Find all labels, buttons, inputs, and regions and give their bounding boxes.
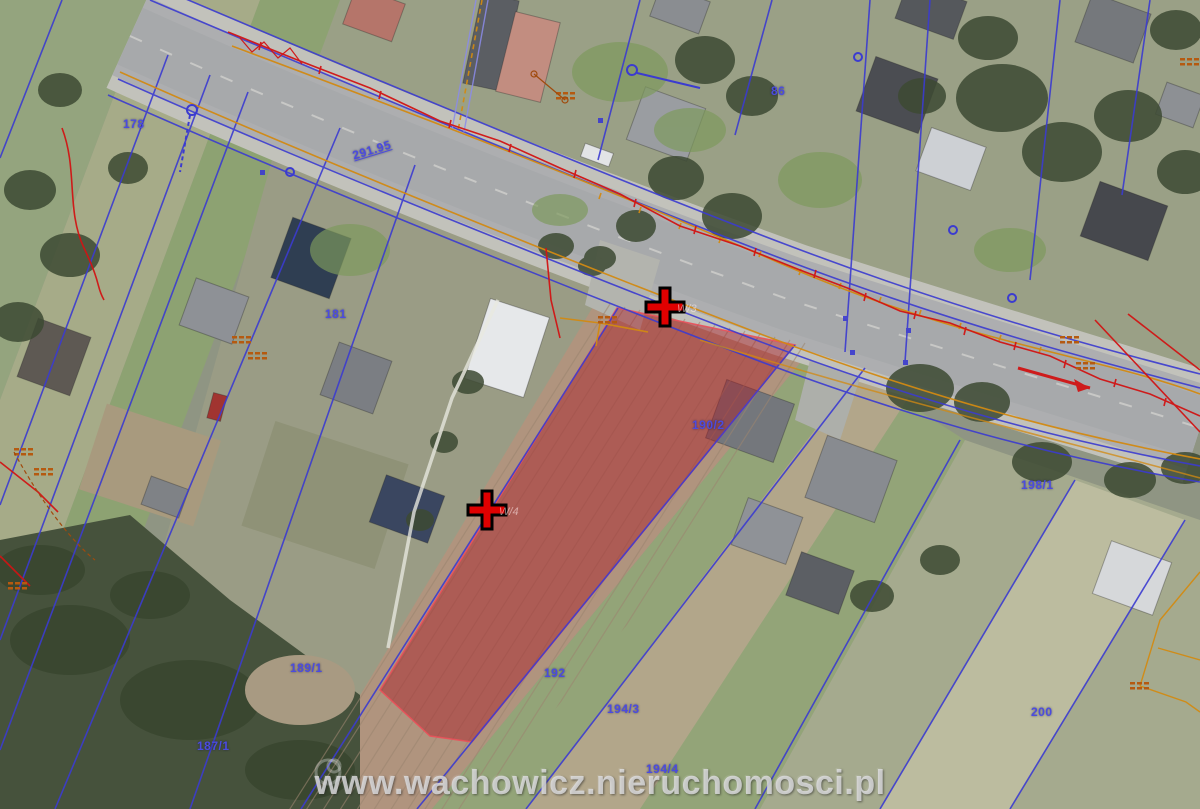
watermark: www.wachowicz.nieruchomosci.pl bbox=[314, 764, 885, 803]
aerial-imagery bbox=[0, 0, 1200, 809]
aerial-map: 17886291.95181190/2198/1189/1187/1192194… bbox=[0, 0, 1200, 809]
